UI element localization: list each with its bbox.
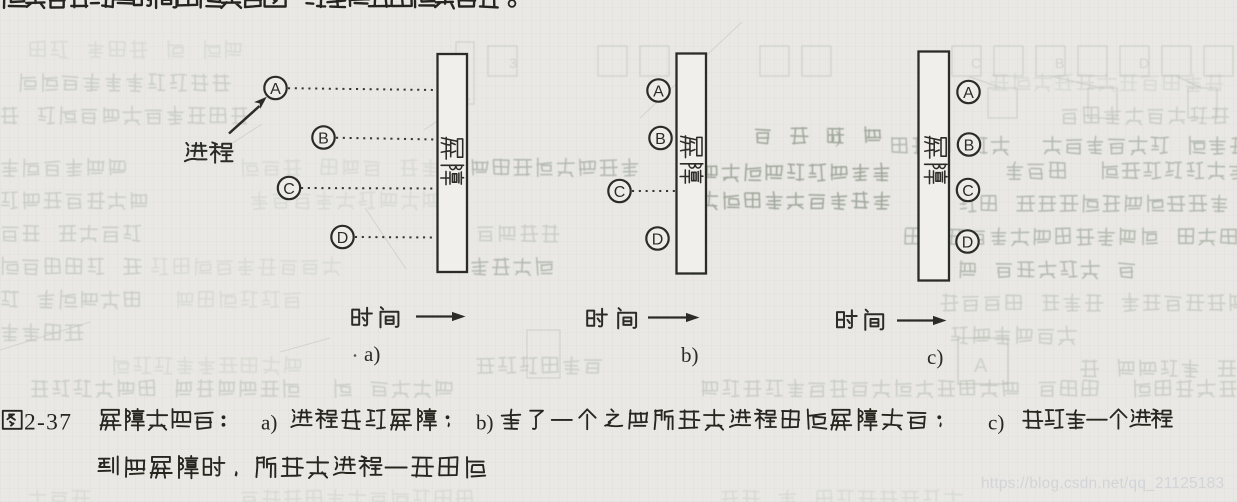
svg-text:A: A bbox=[270, 81, 281, 98]
svg-text:B: B bbox=[964, 137, 975, 154]
svg-text:https://blog.csdn.net/qq_21125: https://blog.csdn.net/qq_21125183 bbox=[981, 475, 1224, 492]
svg-text:D: D bbox=[962, 234, 974, 251]
svg-text:B: B bbox=[1055, 55, 1064, 71]
svg-text:2-37: 2-37 bbox=[24, 410, 72, 436]
svg-text:c): c) bbox=[988, 411, 1004, 435]
svg-text:D: D bbox=[337, 230, 349, 247]
svg-text:b): b) bbox=[681, 343, 699, 367]
svg-text:c): c) bbox=[927, 345, 943, 369]
svg-text:A: A bbox=[653, 83, 664, 100]
svg-text:a): a) bbox=[261, 411, 277, 435]
svg-text:B: B bbox=[655, 131, 666, 148]
svg-text:D: D bbox=[1139, 55, 1149, 71]
svg-text:b): b) bbox=[826, 127, 841, 148]
svg-text:C: C bbox=[971, 55, 981, 71]
svg-text:C: C bbox=[614, 184, 626, 201]
svg-text:C: C bbox=[283, 181, 295, 198]
svg-text:C: C bbox=[962, 183, 974, 200]
svg-text:D: D bbox=[652, 231, 664, 248]
svg-text:A: A bbox=[963, 85, 974, 102]
svg-text:B: B bbox=[318, 130, 329, 147]
svg-text:b): b) bbox=[476, 411, 494, 435]
svg-text:A: A bbox=[974, 355, 988, 377]
svg-text:3: 3 bbox=[509, 55, 517, 71]
svg-text:a): a) bbox=[364, 342, 380, 366]
